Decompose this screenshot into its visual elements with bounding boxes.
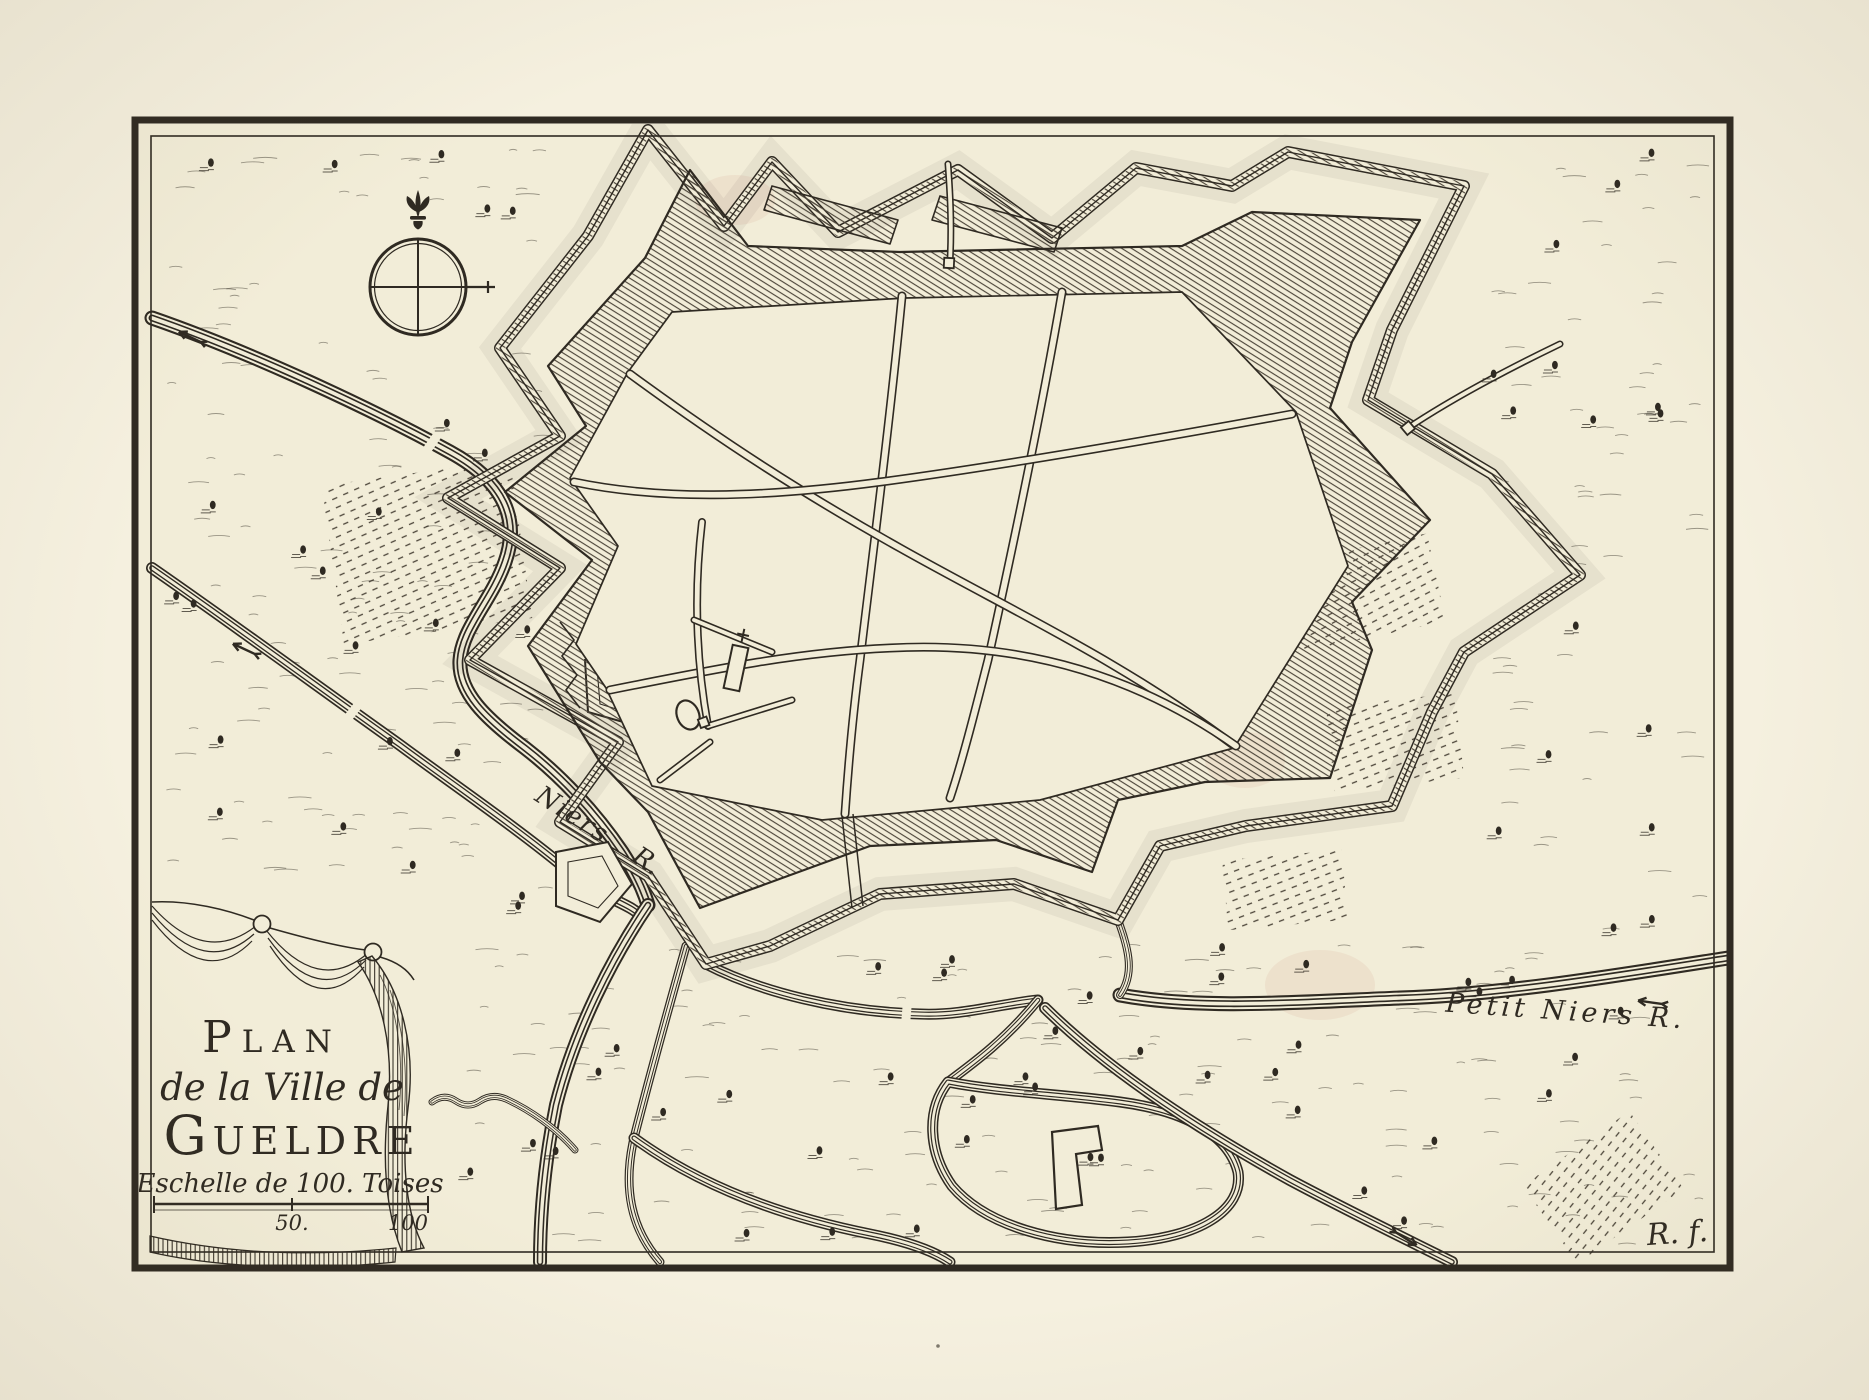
engraved-map-page: Plan de la Ville de Gueldre Eschelle de … xyxy=(0,0,1869,1400)
map-engraving: Plan de la Ville de Gueldre Eschelle de … xyxy=(0,0,1869,1400)
drapery-knob-left xyxy=(254,916,271,933)
map-title-city: Gueldre xyxy=(164,1104,421,1167)
scale-label: Eschelle de 100. Toises xyxy=(135,1169,443,1199)
engraver-signature: R. f. xyxy=(1645,1214,1710,1253)
north-gate xyxy=(944,258,955,269)
paper-speck xyxy=(936,1344,940,1348)
scale-end-number: 100 xyxy=(388,1211,428,1235)
scale-mid-number: 50. xyxy=(275,1211,308,1235)
tower-gate xyxy=(698,717,710,729)
map-title-word: Plan xyxy=(202,1012,342,1063)
map-title-subject: de la Ville de xyxy=(160,1066,404,1109)
